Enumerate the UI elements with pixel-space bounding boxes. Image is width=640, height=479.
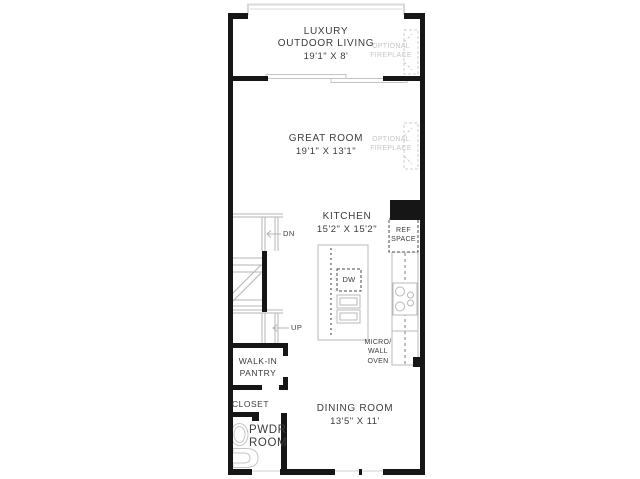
room-name: ROOM (249, 437, 287, 450)
room-name: PANTRY (230, 368, 286, 380)
label-optional-fireplace-lower: OPTIONAL FIREPLACE (366, 135, 416, 154)
room-name: WALK-IN (230, 356, 286, 368)
room-dims: 13'5" X 11' (291, 416, 419, 427)
label-dishwasher: DW (338, 275, 360, 285)
label-stair-up: UP (291, 324, 302, 333)
label-micro-wall-oven: MICRO/ WALL OVEN (358, 338, 398, 366)
label-ref-space: REF SPACE (389, 226, 418, 245)
room-label-dining-room: DINING ROOM 13'5" X 11' (291, 403, 419, 427)
room-label-powder-room: PWDR ROOM (249, 424, 287, 450)
label-optional-fireplace-upper: OPTIONAL FIREPLACE (366, 42, 416, 61)
room-name: DINING ROOM (291, 403, 419, 415)
label-stair-down: DN (283, 230, 295, 239)
room-name: LUXURY (241, 26, 411, 38)
room-name: KITCHEN (283, 211, 411, 223)
room-name: PWDR (249, 424, 287, 437)
room-name: CLOSET (232, 399, 269, 411)
floor-plan: LUXURY OUTDOOR LIVING 19'1" X 8' GREAT R… (0, 0, 640, 479)
cooktop-icon (393, 283, 417, 315)
room-label-walk-in-pantry: WALK-IN PANTRY (230, 356, 286, 380)
deck-railing-icon (248, 5, 404, 16)
kitchen-island (318, 245, 368, 340)
room-label-closet: CLOSET (232, 399, 269, 411)
staircase (230, 214, 283, 343)
